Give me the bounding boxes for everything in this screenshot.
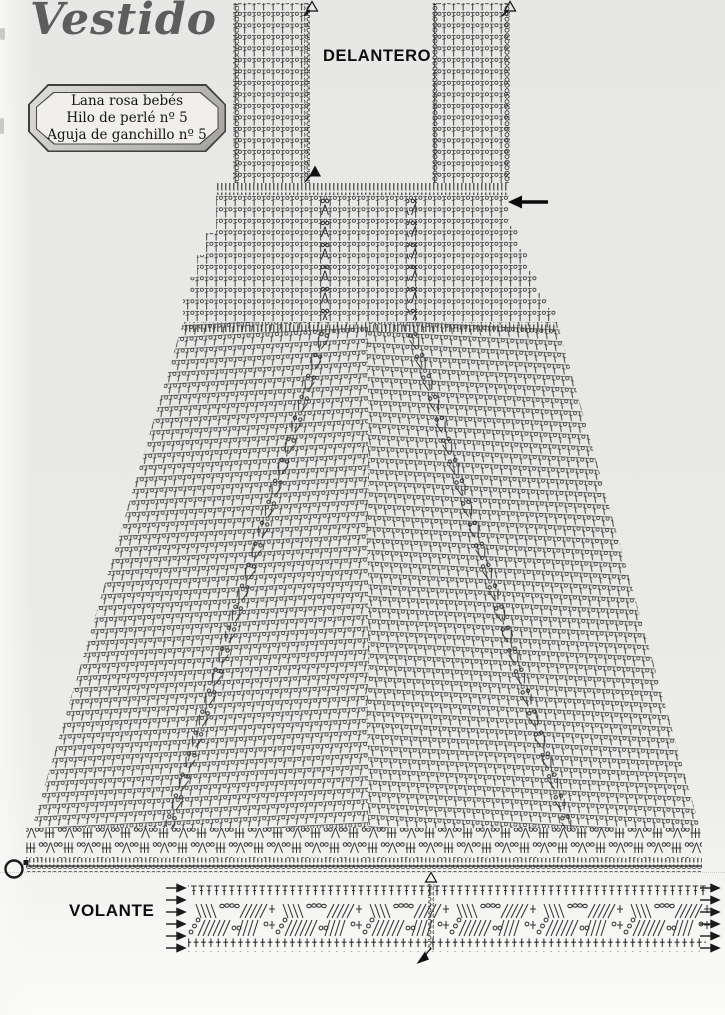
- front-panel-chart: [6, 2, 703, 878]
- bodice-mesh: [183, 195, 556, 322]
- row-direction-arrows-left: [166, 885, 185, 952]
- skirt-mesh-left: [32, 322, 368, 828]
- hem-border-band: [26, 828, 702, 858]
- bodice-decrease-line-right: [407, 198, 417, 320]
- strap-right: [432, 3, 510, 183]
- crochet-chart-svg: [0, 0, 725, 1015]
- strap-left-edge-chain: [233, 3, 239, 183]
- bodice-join-row: [216, 183, 509, 195]
- skirt-mesh-right: [368, 322, 700, 828]
- start-ring-icon: [6, 860, 29, 878]
- repeat-start-marker-icon: [426, 873, 437, 883]
- ruffle-fan-band: [189, 904, 710, 936]
- hem-chain-row: [26, 866, 702, 872]
- bodice-decrease-line-left: [320, 198, 330, 320]
- ruffle-base-row: [188, 938, 706, 952]
- ruffle-chart: [166, 873, 719, 965]
- ruffle-top-row: [188, 884, 706, 897]
- row-indicator-arrow-icon: [508, 196, 548, 209]
- strap-left: [233, 3, 310, 183]
